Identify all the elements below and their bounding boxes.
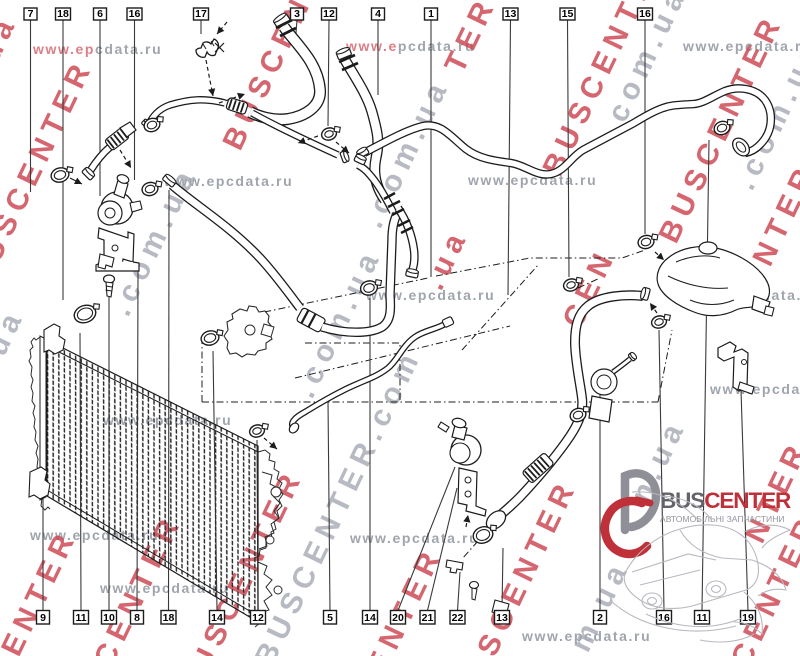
svg-text:1: 1 — [428, 8, 434, 20]
svg-text:12: 12 — [323, 8, 335, 20]
svg-text:18: 18 — [163, 612, 175, 624]
svg-text:5: 5 — [327, 612, 333, 624]
svg-text:6: 6 — [97, 8, 103, 20]
svg-text:18: 18 — [57, 8, 69, 20]
svg-text:2: 2 — [597, 612, 603, 624]
svg-text:3: 3 — [294, 8, 300, 20]
svg-text:15: 15 — [562, 8, 574, 20]
svg-text:12: 12 — [252, 612, 264, 624]
svg-text:АВТОМОБІЛЬНІ ЗАПЧАСТИНИ: АВТОМОБІЛЬНІ ЗАПЧАСТИНИ — [660, 514, 785, 524]
svg-text:16: 16 — [129, 8, 141, 20]
svg-text:14: 14 — [364, 612, 376, 624]
svg-text:21: 21 — [422, 612, 434, 624]
svg-text:www.epcdata.ru: www.epcdata.ru — [365, 287, 495, 303]
svg-text:16: 16 — [639, 8, 651, 20]
svg-text:13: 13 — [496, 612, 508, 624]
svg-text:4: 4 — [375, 8, 381, 20]
svg-text:8: 8 — [134, 612, 140, 624]
svg-text:14: 14 — [211, 612, 223, 624]
svg-text:11: 11 — [75, 612, 86, 624]
svg-text:19: 19 — [742, 612, 754, 624]
svg-text:13: 13 — [505, 8, 517, 20]
svg-text:10: 10 — [103, 612, 115, 624]
svg-text:11: 11 — [696, 612, 707, 624]
svg-text:www.epcdata.ru: www.epcdata.ru — [709, 381, 800, 397]
svg-text:BUSCENTER: BUSCENTER — [660, 488, 791, 513]
svg-text:9: 9 — [40, 612, 46, 624]
svg-text:22: 22 — [452, 612, 464, 624]
svg-text:7: 7 — [28, 8, 34, 20]
svg-text:www.epcdata.ru: www.epcdata.ru — [32, 41, 162, 57]
svg-text:17: 17 — [195, 8, 207, 20]
svg-text:www.epcdata.ru: www.epcdata.ru — [349, 530, 479, 546]
svg-text:20: 20 — [392, 612, 404, 624]
